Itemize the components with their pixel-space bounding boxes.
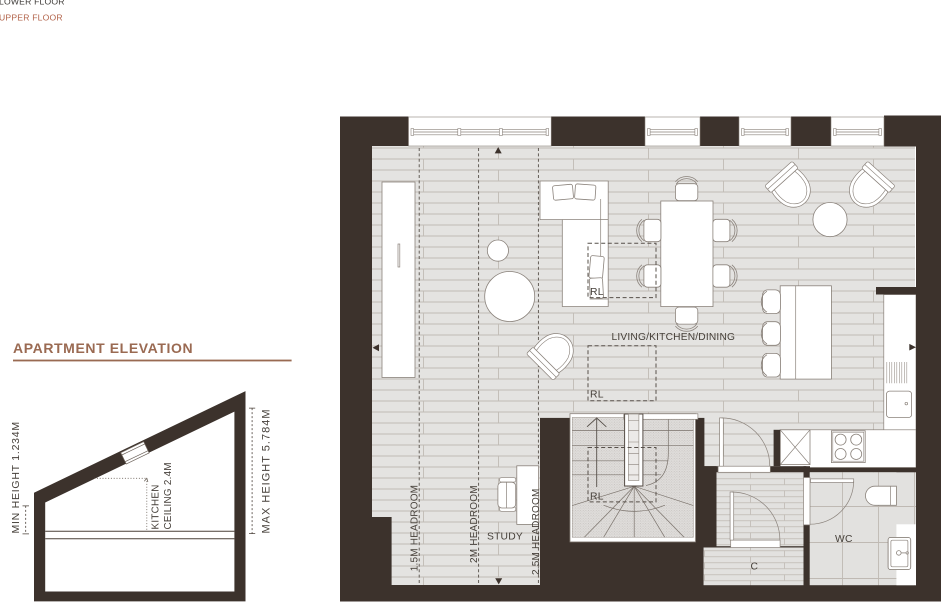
svg-text:WC: WC: [835, 534, 853, 545]
svg-text:RL: RL: [590, 492, 604, 503]
svg-text:KITCHEN: KITCHEN: [151, 484, 162, 529]
svg-text:RL: RL: [590, 287, 604, 298]
svg-text:MAX HEIGHT 5.784M: MAX HEIGHT 5.784M: [261, 409, 273, 534]
svg-text:CEILING 2.4M: CEILING 2.4M: [163, 462, 174, 529]
svg-text:LIVING/KITCHEN/DINING: LIVING/KITCHEN/DINING: [612, 332, 736, 343]
svg-text:RL: RL: [590, 390, 604, 401]
svg-text:2.5M HEADROOM: 2.5M HEADROOM: [531, 488, 542, 575]
svg-text:C: C: [751, 561, 759, 572]
svg-text:LOWER FLOOR: LOWER FLOOR: [0, 0, 65, 6]
svg-text:UPPER FLOOR: UPPER FLOOR: [0, 12, 63, 22]
svg-text:MIN HEIGHT 1.234M: MIN HEIGHT 1.234M: [10, 421, 22, 533]
svg-text:2M HEADROOM: 2M HEADROOM: [469, 485, 480, 563]
svg-text:APARTMENT ELEVATION: APARTMENT ELEVATION: [13, 340, 193, 356]
svg-text:STUDY: STUDY: [487, 531, 523, 542]
svg-text:1.5M HEADROOM: 1.5M HEADROOM: [409, 485, 420, 572]
